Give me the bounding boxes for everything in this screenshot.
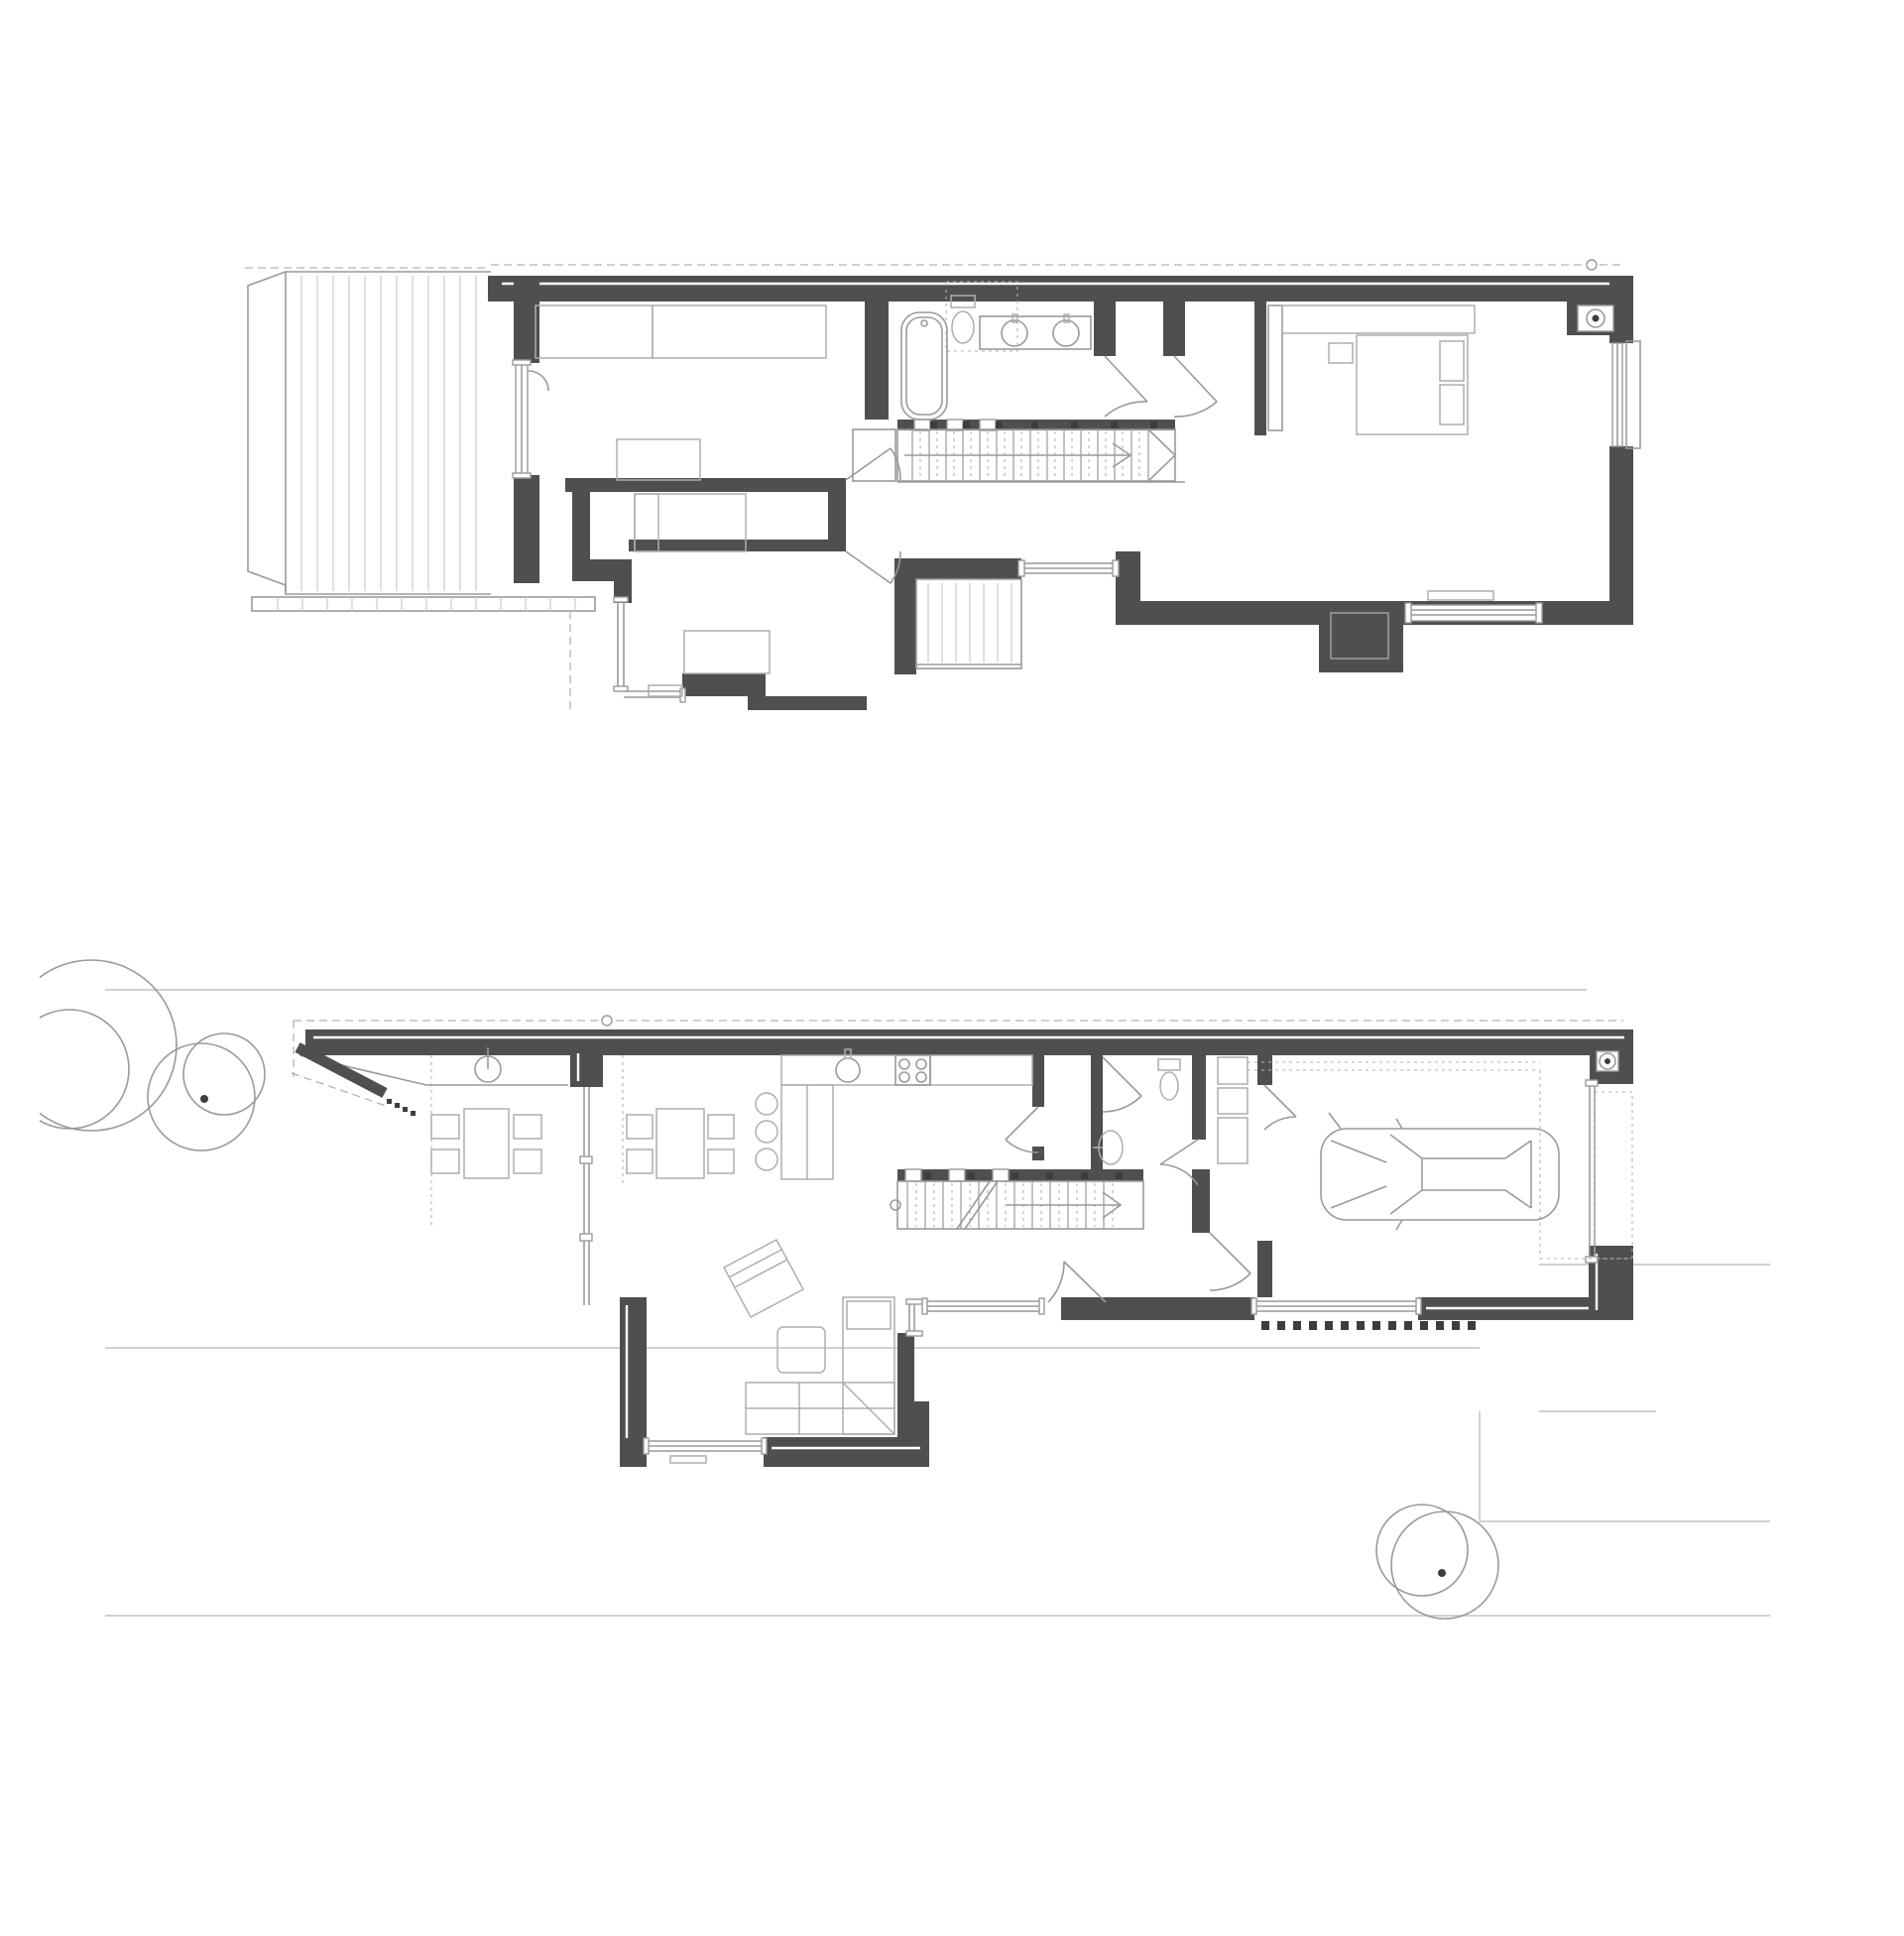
floor-plan-sheet: [40, 16, 1904, 1920]
ground-floor-plan: [292, 1016, 1633, 1467]
floor-plan-svg: [40, 16, 1904, 1920]
upper-floor-plan: [245, 260, 1640, 710]
